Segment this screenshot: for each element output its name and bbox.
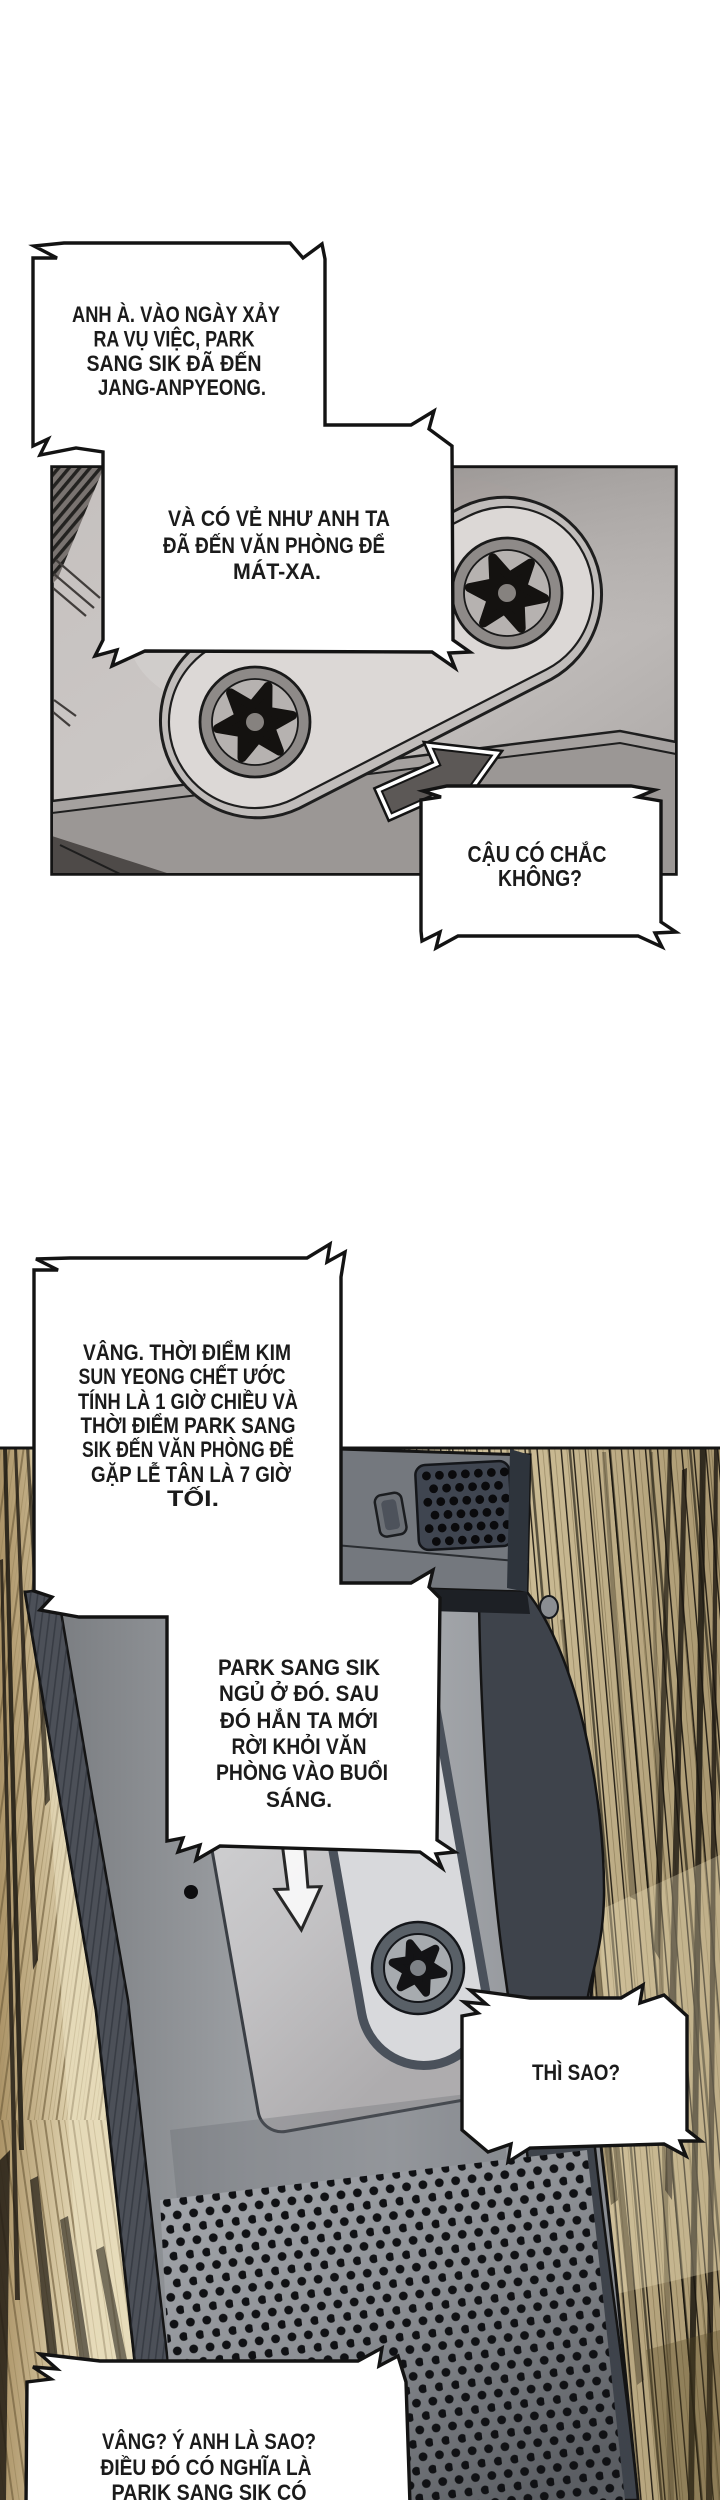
svg-text:ĐIỀU ĐÓ CÓ NGHĨA LÀ: ĐIỀU ĐÓ CÓ NGHĨA LÀ [101, 2455, 312, 2480]
svg-text:RA VỤ VIỆC, PARK: RA VỤ VIỆC, PARK [94, 327, 255, 352]
svg-text:RỜI KHỎI VĂN: RỜI KHỎI VĂN [232, 1734, 367, 1759]
svg-text:ĐÃ ĐẾN VĂN PHÒNG ĐỂ: ĐÃ ĐẾN VĂN PHÒNG ĐỂ [163, 533, 385, 558]
svg-text:THÌ SAO?: THÌ SAO? [532, 2060, 620, 2085]
svg-text:GẶP LỄ TÂN LÀ 7 GIỜ: GẶP LỄ TÂN LÀ 7 GIỜ [91, 1461, 291, 1487]
svg-text:VÂNG? Ý ANH LÀ SAO?: VÂNG? Ý ANH LÀ SAO? [102, 2429, 316, 2454]
svg-text:PARK SANG SIK: PARK SANG SIK [218, 1655, 380, 1680]
svg-text:MÁT-XA.: MÁT-XA. [233, 559, 321, 584]
svg-text:TÍNH LÀ 1 GIỜ CHIỀU VÀ: TÍNH LÀ 1 GIỜ CHIỀU VÀ [78, 1389, 298, 1414]
svg-text:JANG-ANPYEONG.: JANG-ANPYEONG. [98, 375, 266, 400]
svg-text:KHÔNG?: KHÔNG? [498, 864, 582, 891]
svg-text:SANG SIK ĐÃ ĐẾN: SANG SIK ĐÃ ĐẾN [87, 351, 262, 376]
svg-text:ĐÓ HẮN TA MỚI: ĐÓ HẮN TA MỚI [220, 1708, 378, 1733]
svg-text:VÂNG. THỜI ĐIỂM KIM: VÂNG. THỜI ĐIỂM KIM [83, 1340, 291, 1365]
svg-text:CẬU CÓ CHẮC: CẬU CÓ CHẮC [468, 840, 607, 867]
svg-text:PARIK SANG SIK CÓ: PARIK SANG SIK CÓ [112, 2480, 307, 2500]
svg-text:TỐI.: TỐI. [167, 1485, 219, 1511]
svg-text:SÁNG.: SÁNG. [266, 1787, 332, 1812]
svg-text:ANH À. VÀO NGÀY XẢY: ANH À. VÀO NGÀY XẢY [72, 302, 280, 327]
svg-text:VÀ CÓ VẺ NHƯ ANH TA: VÀ CÓ VẺ NHƯ ANH TA [168, 506, 390, 531]
svg-text:SUN YEONG CHẾT ƯỚC: SUN YEONG CHẾT ƯỚC [79, 1364, 286, 1389]
svg-text:THỜI ĐIỂM PARK SANG: THỜI ĐIỂM PARK SANG [81, 1413, 296, 1438]
svg-text:PHÒNG VÀO BUỔI: PHÒNG VÀO BUỔI [216, 1760, 388, 1785]
svg-text:SIK ĐẾN VĂN PHÒNG ĐỂ: SIK ĐẾN VĂN PHÒNG ĐỂ [82, 1437, 294, 1462]
svg-text:NGỦ Ở ĐÓ. SAU: NGỦ Ở ĐÓ. SAU [219, 1681, 379, 1706]
